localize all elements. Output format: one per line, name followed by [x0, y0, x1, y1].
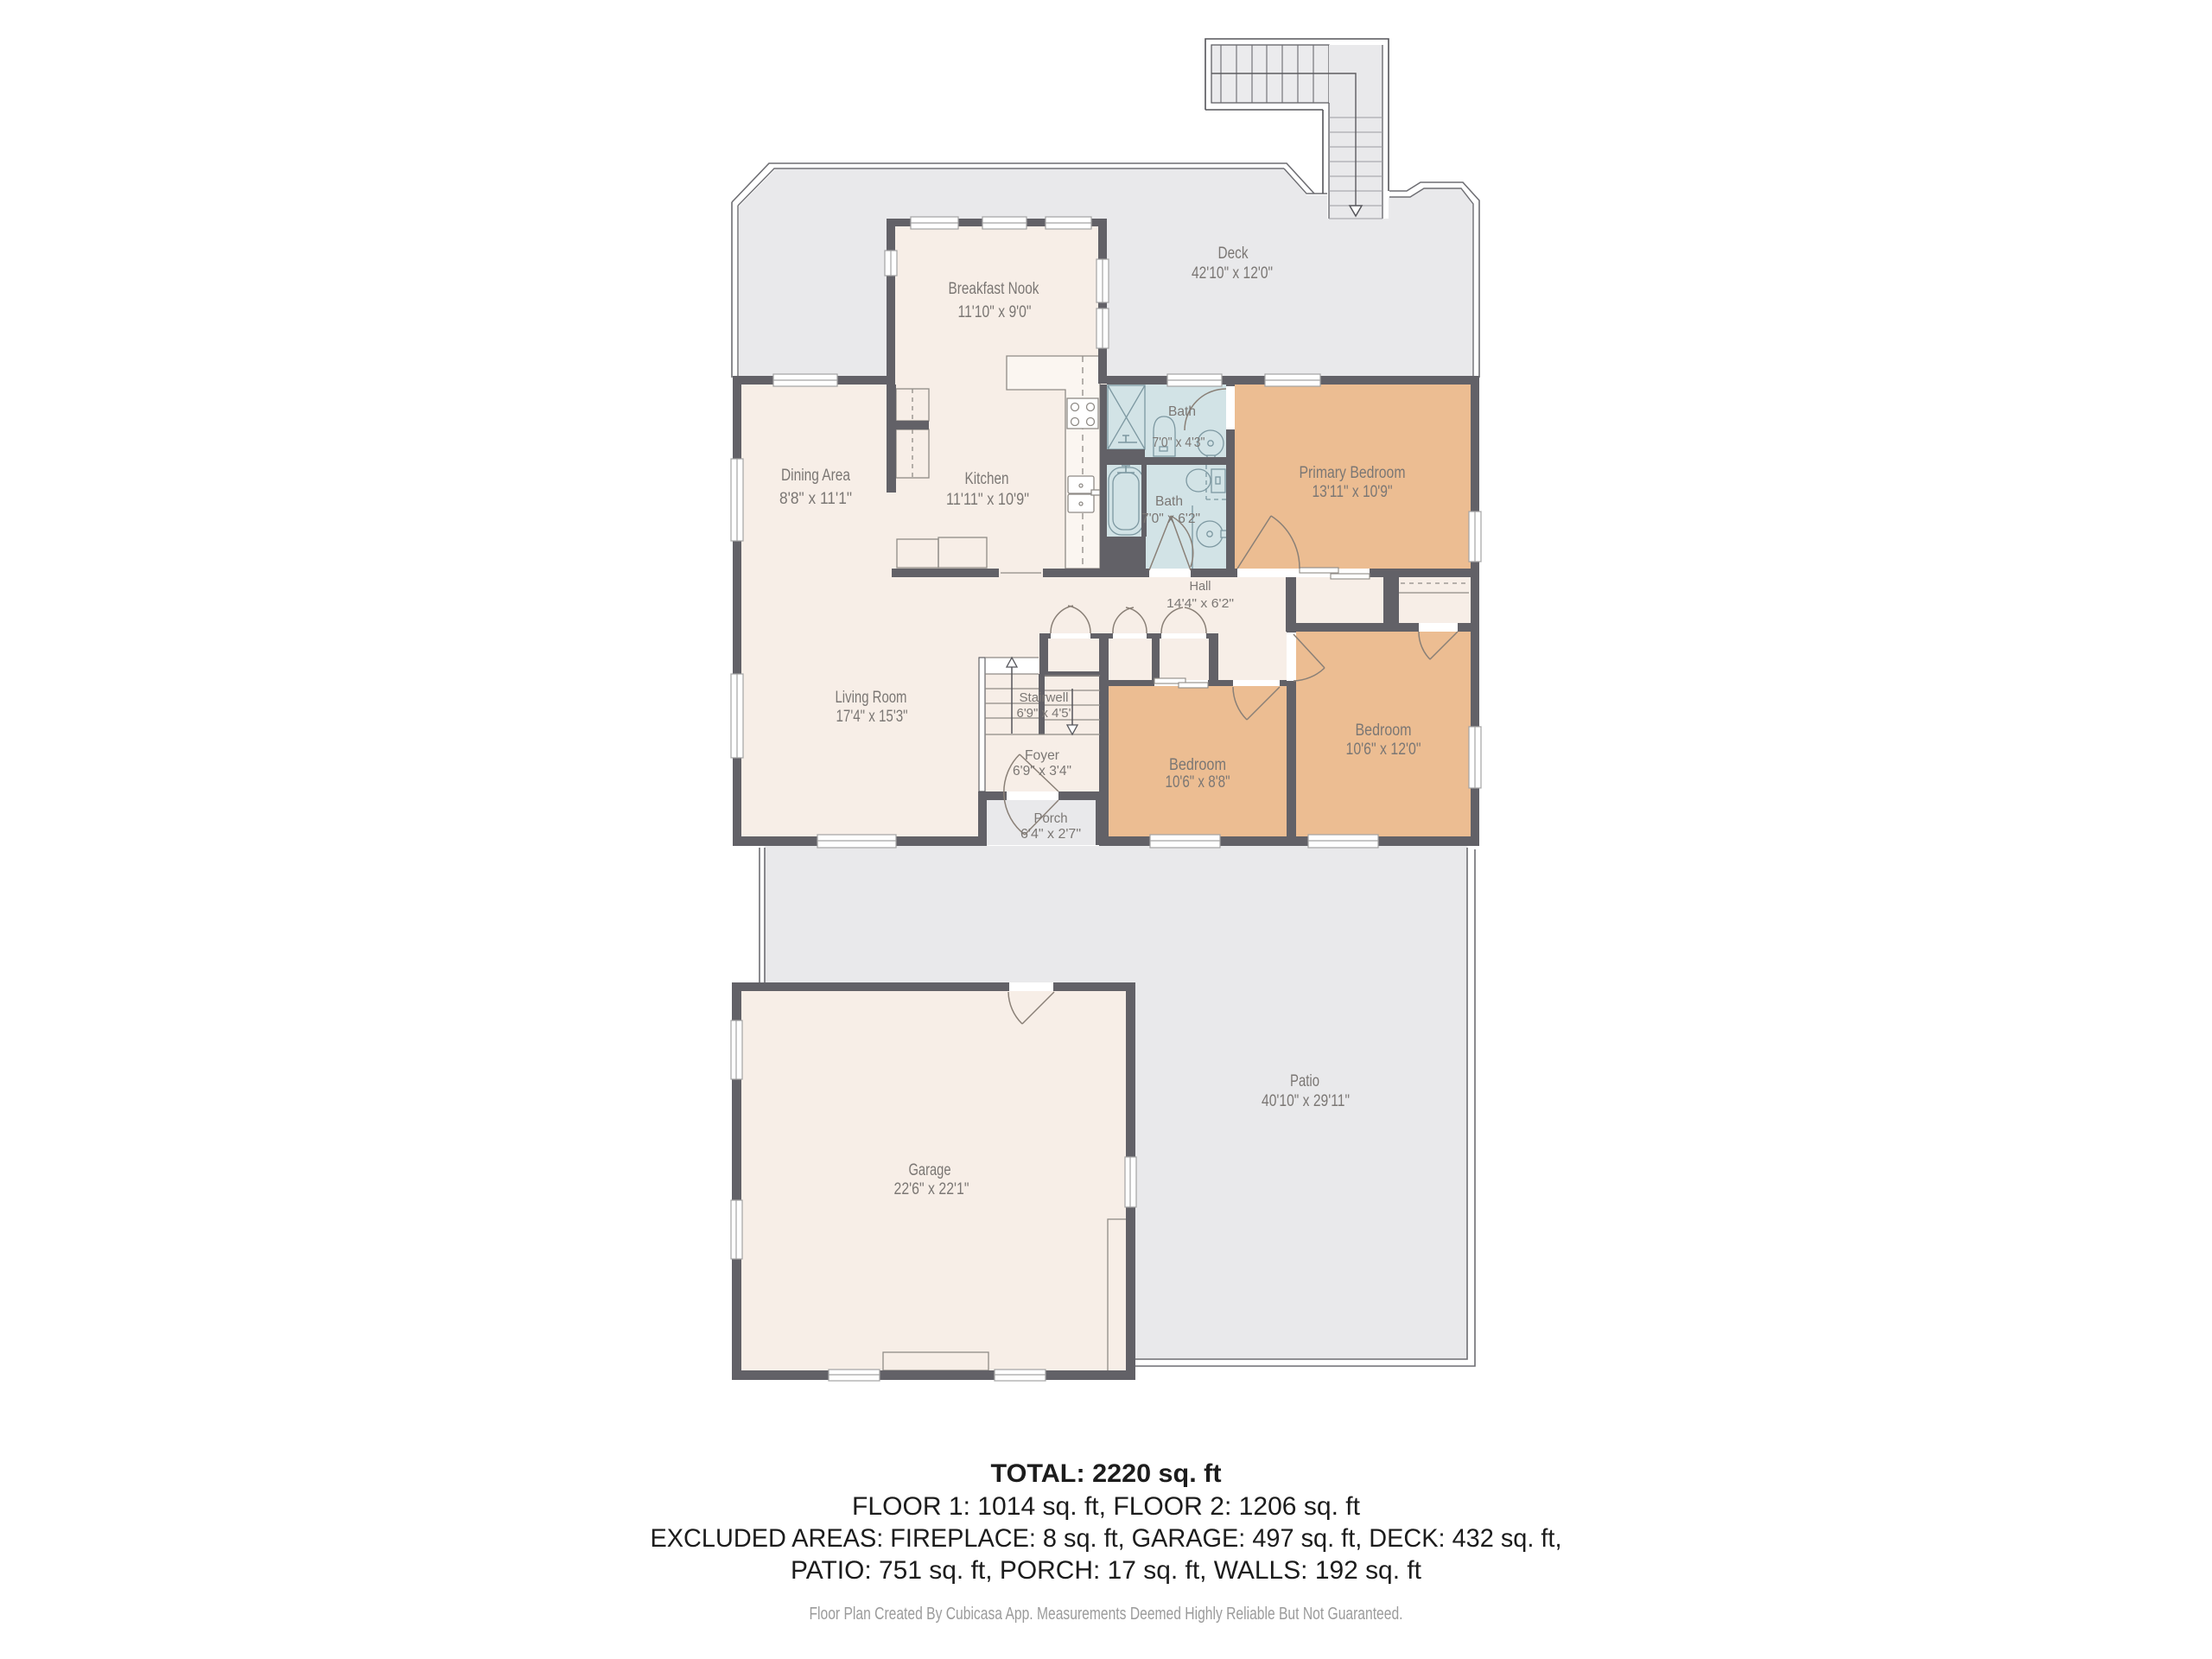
- svg-text:17'4" x 15'3": 17'4" x 15'3": [836, 708, 908, 726]
- svg-text:Deck: Deck: [1218, 245, 1249, 263]
- svg-text:11'10" x 9'0": 11'10" x 9'0": [958, 303, 1032, 321]
- svg-text:Porch: Porch: [1034, 811, 1068, 826]
- svg-text:Living Room: Living Room: [836, 689, 907, 707]
- svg-text:Bath: Bath: [1168, 404, 1196, 419]
- svg-text:Primary Bedroom: Primary Bedroom: [1300, 464, 1406, 482]
- svg-text:Breakfast Nook: Breakfast Nook: [949, 280, 1039, 298]
- svg-text:13'11" x 10'9": 13'11" x 10'9": [1313, 483, 1393, 501]
- svg-text:11'11" x 10'9": 11'11" x 10'9": [946, 491, 1029, 509]
- svg-text:6'4" x 2'7": 6'4" x 2'7": [1020, 827, 1081, 842]
- svg-text:EXCLUDED AREAS: FIREPLACE: 8 s: EXCLUDED AREAS: FIREPLACE: 8 sq. ft, GAR…: [651, 1524, 1562, 1553]
- svg-text:40'10" x 29'11": 40'10" x 29'11": [1262, 1092, 1350, 1110]
- svg-text:Patio: Patio: [1290, 1072, 1319, 1090]
- svg-text:8'8" x 11'1": 8'8" x 11'1": [779, 490, 852, 508]
- svg-text:Bedroom: Bedroom: [1356, 721, 1412, 740]
- svg-text:22'6" x 22'1": 22'6" x 22'1": [894, 1180, 969, 1198]
- svg-text:6'9" x 4'5': 6'9" x 4'5': [1017, 706, 1071, 721]
- svg-text:Dining Area: Dining Area: [781, 467, 850, 485]
- svg-text:Foyer: Foyer: [1025, 748, 1060, 763]
- svg-text:14'4" x 6'2": 14'4" x 6'2": [1166, 596, 1234, 611]
- svg-text:7'0" x 6'2": 7'0" x 6'2": [1141, 512, 1200, 526]
- svg-text:10'6" x 12'0": 10'6" x 12'0": [1346, 741, 1421, 759]
- svg-text:PATIO: 751 sq. ft, PORCH: 17 s: PATIO: 751 sq. ft, PORCH: 17 sq. ft, WAL…: [791, 1556, 1422, 1585]
- svg-text:42'10" x 12'0": 42'10" x 12'0": [1192, 264, 1273, 283]
- svg-text:10'6" x 8'8": 10'6" x 8'8": [1166, 773, 1230, 791]
- svg-text:Bath: Bath: [1155, 494, 1183, 509]
- svg-text:6'9" x 3'4": 6'9" x 3'4": [1013, 764, 1071, 779]
- svg-text:TOTAL: 2220 sq. ft: TOTAL: 2220 sq. ft: [991, 1459, 1222, 1488]
- svg-text:FLOOR 1: 1014 sq. ft, FLOOR 2:: FLOOR 1: 1014 sq. ft, FLOOR 2: 1206 sq. …: [852, 1492, 1361, 1521]
- svg-text:Hall: Hall: [1190, 579, 1211, 594]
- svg-text:Kitchen: Kitchen: [965, 470, 1009, 488]
- svg-text:Stairwell: Stairwell: [1020, 690, 1069, 705]
- svg-text:Floor Plan Created By Cubicasa: Floor Plan Created By Cubicasa App. Meas…: [810, 1605, 1403, 1624]
- svg-text:Garage: Garage: [909, 1161, 951, 1179]
- svg-text:7'0" x 4'3": 7'0" x 4'3": [1153, 435, 1205, 450]
- svg-text:Bedroom: Bedroom: [1169, 756, 1226, 774]
